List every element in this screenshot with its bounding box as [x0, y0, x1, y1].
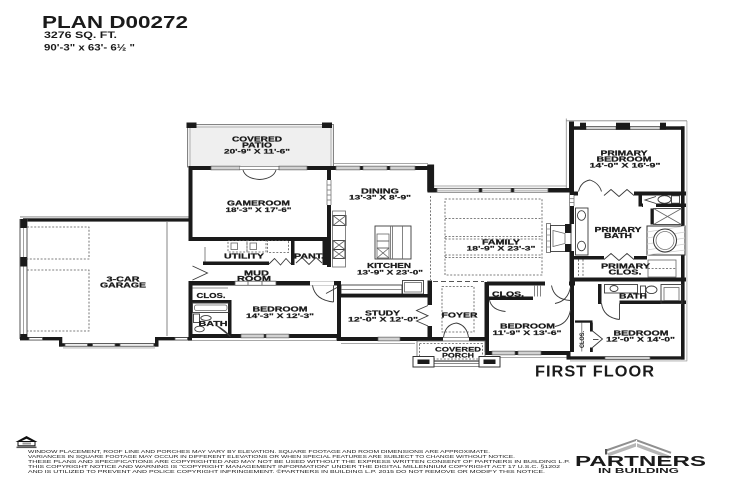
- svg-text:IN BUILDING: IN BUILDING: [598, 466, 679, 475]
- svg-text:CLOS.: CLOS.: [492, 292, 524, 299]
- svg-text:PLAN D00272: PLAN D00272: [42, 12, 188, 32]
- svg-text:PORCH: PORCH: [442, 353, 474, 360]
- svg-text:BATH: BATH: [619, 294, 647, 301]
- svg-text:11'-9" X 13'-6": 11'-9" X 13'-6": [493, 330, 562, 337]
- svg-text:13'-3" X 8'-9": 13'-3" X 8'-9": [349, 195, 411, 202]
- svg-text:18'-9" X 23'-3": 18'-9" X 23'-3": [467, 246, 536, 253]
- svg-text:12'-0" X 12'-0": 12'-0" X 12'-0": [348, 317, 418, 324]
- svg-text:GARAGE: GARAGE: [100, 283, 146, 290]
- svg-text:PANT.: PANT.: [294, 254, 324, 261]
- svg-text:UTILITY: UTILITY: [224, 254, 264, 261]
- svg-text:FIRST FLOOR: FIRST FLOOR: [535, 364, 655, 381]
- svg-text:3276 SQ. FT.: 3276 SQ. FT.: [44, 30, 117, 41]
- svg-text:CLOS.: CLOS.: [197, 293, 226, 300]
- svg-text:AND IS UTILIZED TO PREVENT AND: AND IS UTILIZED TO PREVENT AND POLICE CO…: [28, 468, 545, 474]
- svg-text:14'-0" X 16'-9": 14'-0" X 16'-9": [590, 163, 661, 170]
- svg-text:BATH: BATH: [199, 321, 228, 328]
- svg-text:12'-0" X 14'-0": 12'-0" X 14'-0": [606, 337, 675, 344]
- svg-text:14'-3" X 12'-3": 14'-3" X 12'-3": [246, 313, 314, 320]
- svg-text:18'-3" X 17'-6": 18'-3" X 17'-6": [226, 207, 292, 214]
- svg-text:20'-9" X 11'-6": 20'-9" X 11'-6": [224, 149, 290, 156]
- svg-text:CLOS.: CLOS.: [580, 331, 586, 348]
- svg-text:CLOS.: CLOS.: [609, 270, 642, 277]
- svg-text:13'-9" X 23'-0": 13'-9" X 23'-0": [357, 270, 423, 277]
- svg-text:90'-3" x 63'- 6½ ": 90'-3" x 63'- 6½ ": [44, 43, 135, 54]
- svg-text:FOYER: FOYER: [442, 313, 478, 320]
- svg-text:BATH: BATH: [604, 233, 632, 240]
